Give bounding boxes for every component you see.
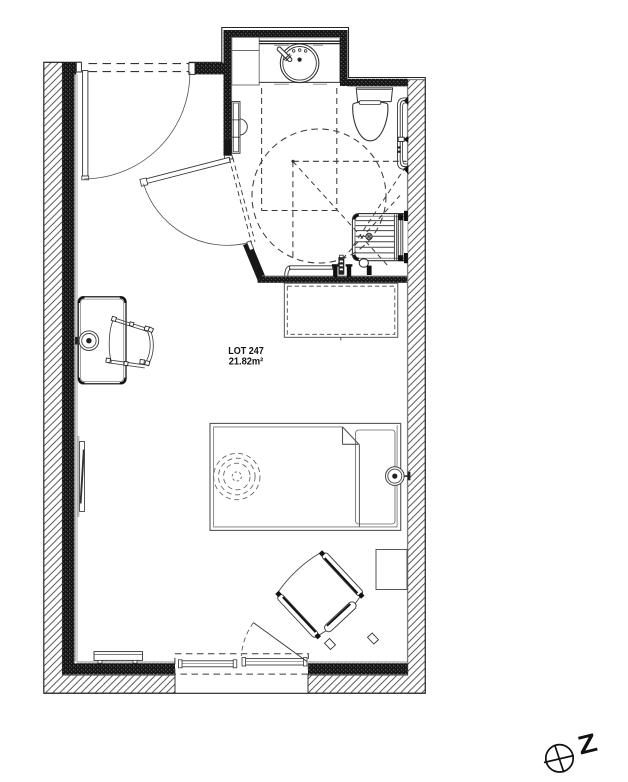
svg-text:LOT 247: LOT 247 <box>228 346 264 357</box>
svg-text:21.82m²: 21.82m² <box>229 357 264 368</box>
